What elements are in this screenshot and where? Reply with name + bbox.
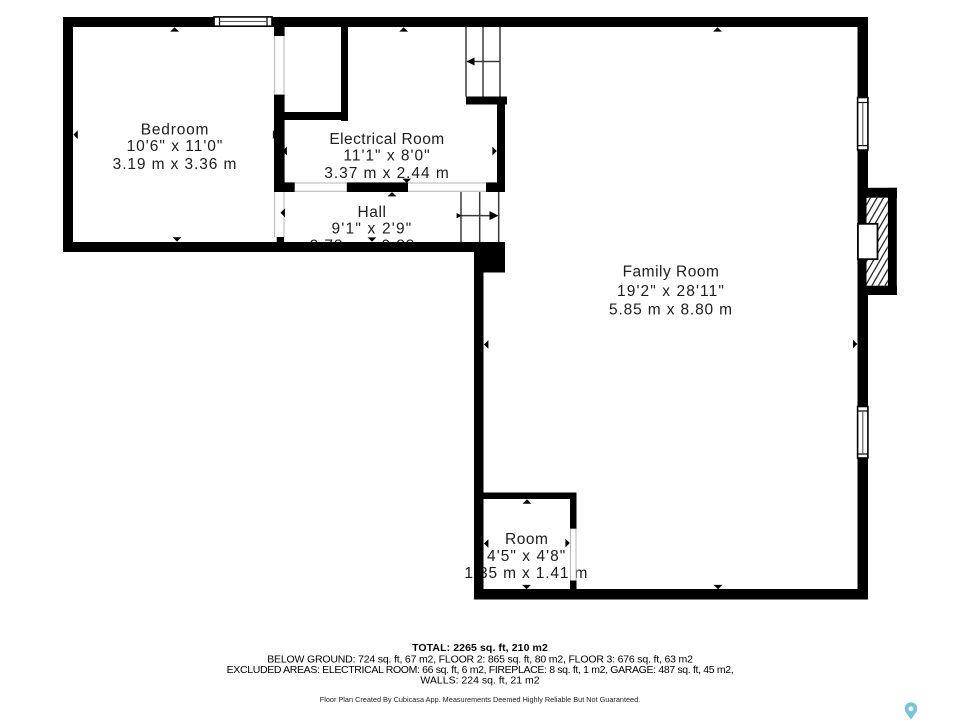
svg-text:Family Room: Family Room bbox=[623, 263, 720, 280]
svg-text:3.19 m x 3.36 m: 3.19 m x 3.36 m bbox=[113, 156, 238, 173]
svg-text:3.37 m x 2.44 m: 3.37 m x 2.44 m bbox=[324, 165, 449, 182]
svg-text:TOTAL: 2265 sq. ft, 210 m2: TOTAL: 2265 sq. ft, 210 m2 bbox=[412, 642, 548, 654]
svg-text:19'2" x 28'11": 19'2" x 28'11" bbox=[617, 283, 725, 300]
svg-text:Room: Room bbox=[505, 531, 548, 548]
svg-text:WALLS: 224 sq. ft, 21 m2: WALLS: 224 sq. ft, 21 m2 bbox=[420, 674, 539, 686]
svg-text:Floor Plan Created By Cubicasa: Floor Plan Created By Cubicasa App. Meas… bbox=[320, 695, 640, 704]
svg-text:4'5" x 4'8": 4'5" x 4'8" bbox=[487, 548, 566, 565]
svg-text:Electrical Room: Electrical Room bbox=[329, 131, 444, 148]
svg-text:9'1" x 2'9": 9'1" x 2'9" bbox=[332, 220, 413, 237]
svg-text:5.85 m x 8.80 m: 5.85 m x 8.80 m bbox=[609, 302, 733, 319]
svg-text:Hall: Hall bbox=[357, 204, 386, 221]
svg-text:Bedroom: Bedroom bbox=[141, 122, 210, 139]
svg-text:10'6" x 11'0": 10'6" x 11'0" bbox=[127, 138, 224, 155]
svg-text:11'1" x 8'0": 11'1" x 8'0" bbox=[343, 148, 430, 165]
